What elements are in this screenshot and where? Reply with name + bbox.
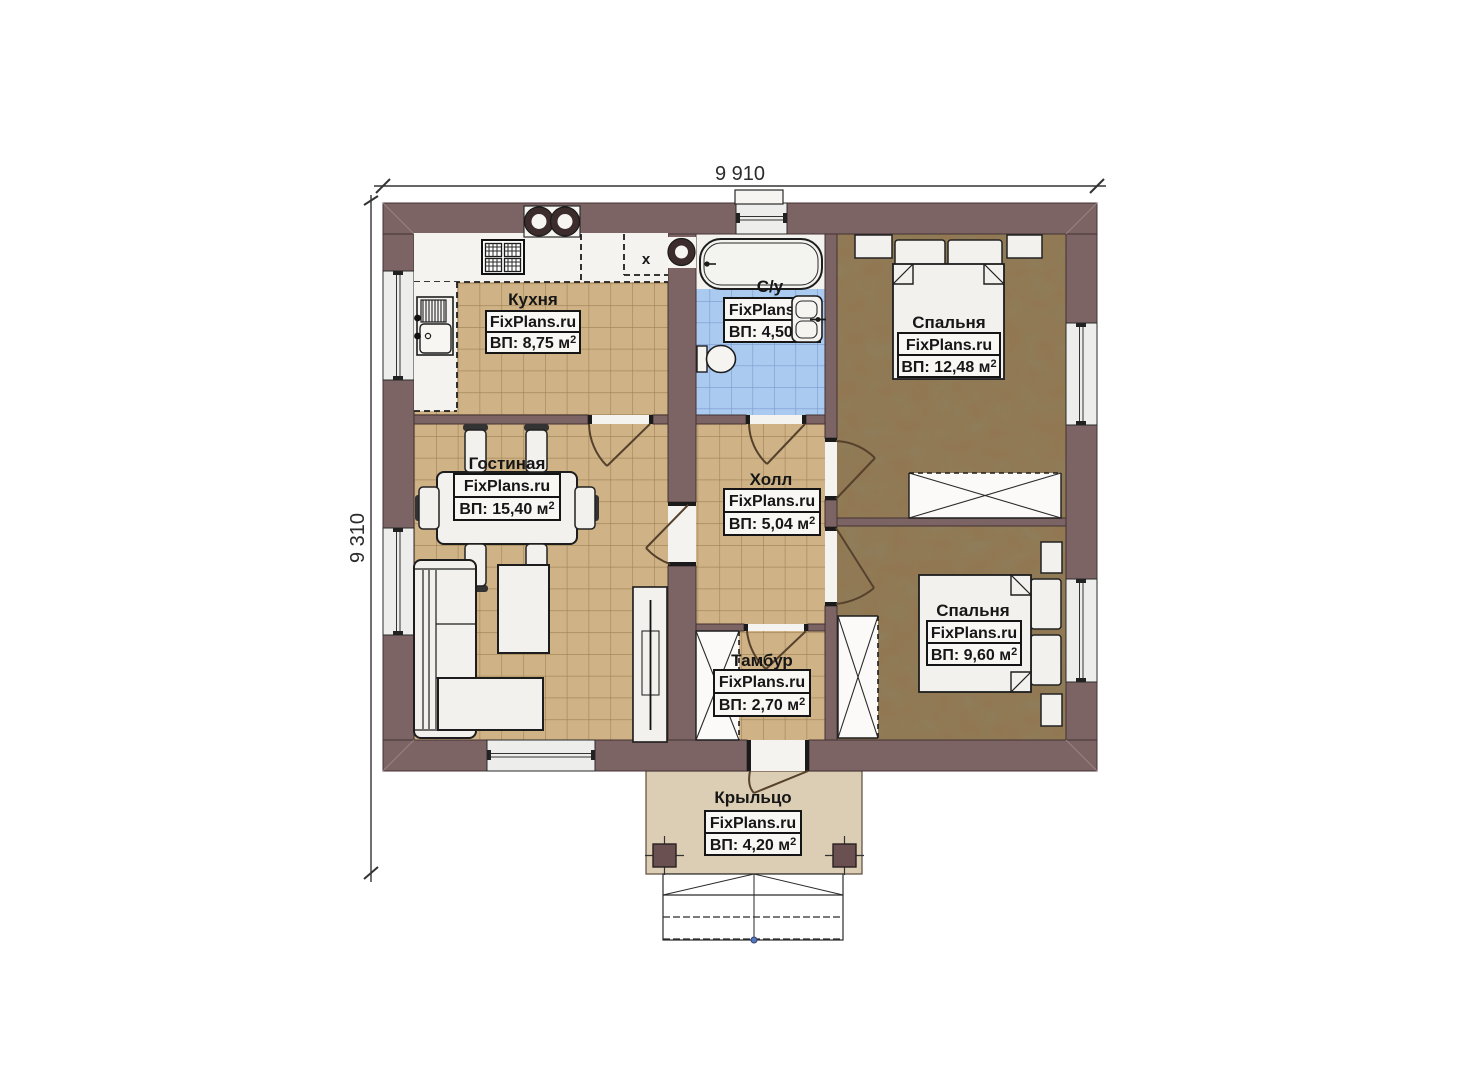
svg-text:ВП: 5,04 м2: ВП: 5,04 м2 [729,515,815,533]
svg-text:FixPlans.ru: FixPlans.ru [719,674,805,691]
svg-text:9 310: 9 310 [347,513,369,563]
svg-text:Тамбур: Тамбур [731,651,793,670]
svg-text:FixPlans.ru: FixPlans.ru [931,625,1017,642]
svg-text:Кухня: Кухня [508,290,558,309]
svg-text:Холл: Холл [750,470,793,489]
svg-text:ВП: 8,75 м2: ВП: 8,75 м2 [490,334,576,352]
svg-text:ВП: 4,20 м2: ВП: 4,20 м2 [710,836,796,854]
svg-text:ВП: 2,70 м2: ВП: 2,70 м2 [719,696,805,714]
svg-text:FixPlans.ru: FixPlans.ru [464,478,550,495]
svg-text:ВП: 12,48 м2: ВП: 12,48 м2 [901,358,996,376]
svg-text:С/у: С/у [757,277,784,296]
svg-text:Гостиная: Гостиная [469,454,546,473]
svg-text:9 910: 9 910 [715,163,765,185]
svg-text:Спальня: Спальня [912,313,985,332]
svg-text:FixPlans.ru: FixPlans.ru [729,493,815,510]
svg-text:ВП: 15,40 м2: ВП: 15,40 м2 [459,500,554,518]
svg-text:FixPlans.ru: FixPlans.ru [490,314,576,331]
svg-text:FixPlans.ru: FixPlans.ru [710,815,796,832]
svg-text:ВП: 9,60 м2: ВП: 9,60 м2 [931,646,1017,664]
svg-text:Спальня: Спальня [936,601,1009,620]
svg-text:FixPlans.ru: FixPlans.ru [906,337,992,354]
svg-text:x: x [642,251,651,268]
svg-text:Крыльцо: Крыльцо [714,788,791,807]
